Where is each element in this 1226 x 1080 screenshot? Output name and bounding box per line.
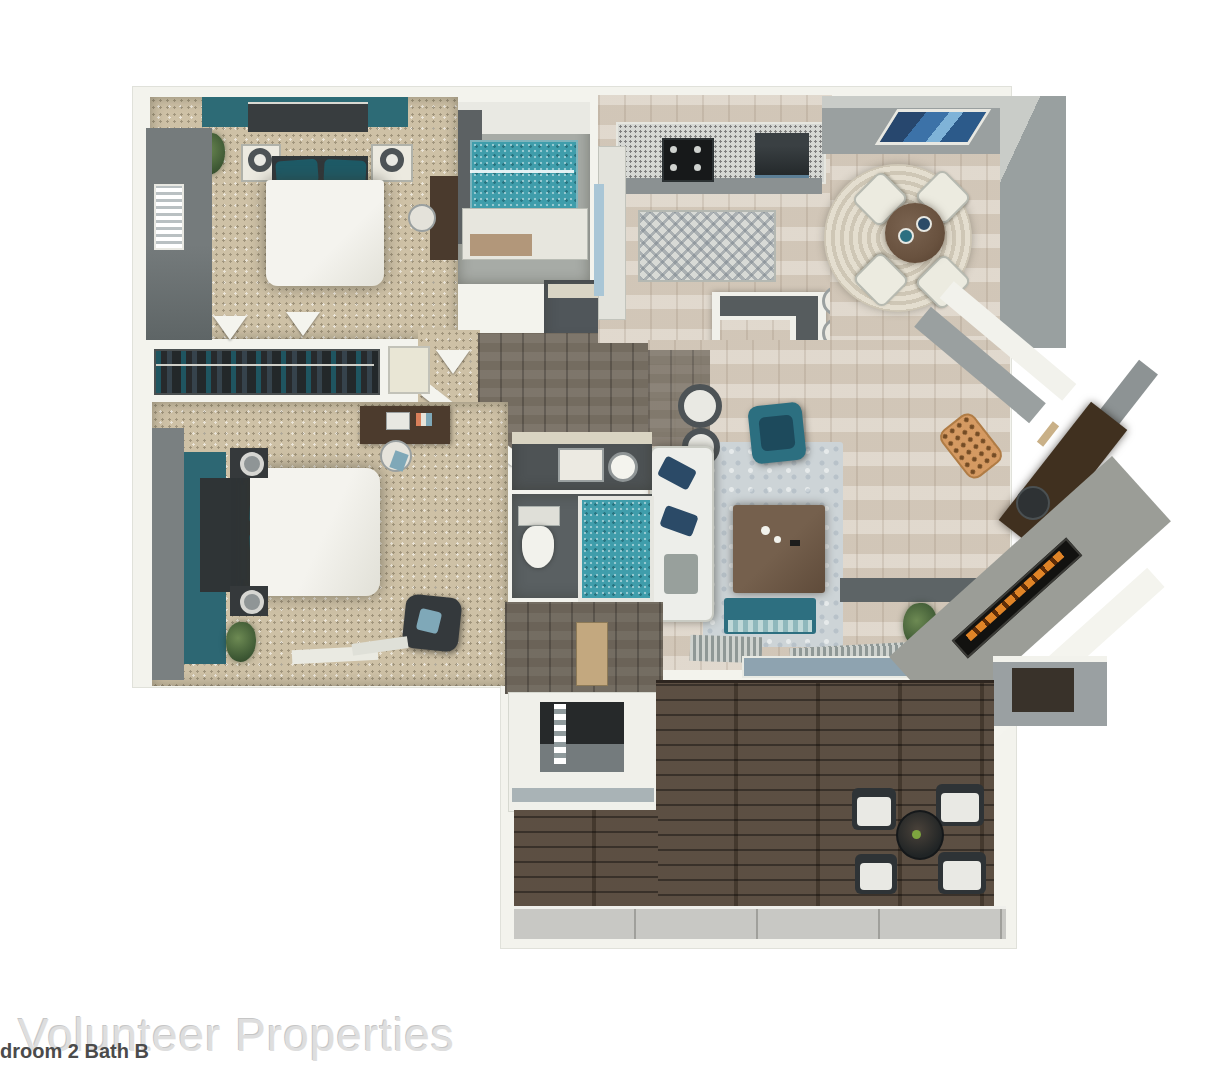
desk-shelf-items bbox=[1037, 421, 1059, 446]
patio-deck-floor-left bbox=[514, 810, 658, 908]
round-side-table bbox=[678, 384, 722, 428]
vanity-wood-base bbox=[470, 234, 532, 256]
patio-concrete-walk bbox=[514, 906, 1006, 939]
patio-chair bbox=[938, 852, 986, 894]
stove-cooktop bbox=[662, 138, 714, 182]
bathroom-2-tub bbox=[578, 496, 654, 602]
remote bbox=[790, 540, 800, 546]
door-swing bbox=[436, 350, 470, 374]
utility-box-interior bbox=[1012, 668, 1074, 712]
floor-plan-page: Volunteer Properties droom 2 Bath B bbox=[0, 0, 1226, 1080]
sliding-glass-door bbox=[742, 656, 911, 678]
bedroom-2-exterior-wall bbox=[152, 428, 184, 680]
lamp-icon bbox=[380, 148, 404, 172]
armchair-cushion bbox=[758, 414, 795, 451]
coffee-mug bbox=[761, 526, 770, 535]
burner-icon bbox=[670, 164, 677, 171]
table-setting bbox=[898, 228, 914, 244]
patio-chair bbox=[855, 854, 897, 894]
desk-chair bbox=[408, 204, 436, 232]
patio-table-plant bbox=[912, 830, 921, 839]
kitchen-window bbox=[594, 184, 604, 296]
closet-rod bbox=[156, 364, 374, 366]
sofa-throw bbox=[664, 554, 698, 594]
walk-in-closet bbox=[154, 349, 380, 395]
open-door-slab bbox=[576, 622, 608, 686]
plan-caption: droom 2 Bath B bbox=[0, 1040, 149, 1063]
burner-icon bbox=[670, 146, 677, 153]
bedroom-1-dresser bbox=[248, 102, 368, 132]
kitchen-rug bbox=[638, 210, 776, 282]
lamp-icon bbox=[248, 148, 272, 172]
refrigerator bbox=[755, 133, 809, 178]
bedroom-1-bed bbox=[266, 180, 384, 286]
storage-step-band bbox=[512, 788, 654, 802]
bathroom-1-shower bbox=[470, 140, 578, 210]
counter-front-edge bbox=[616, 178, 822, 194]
coffee-mug bbox=[774, 536, 781, 543]
bench-cushion bbox=[728, 620, 812, 632]
dining-right-wall bbox=[1000, 96, 1066, 348]
dining-table bbox=[885, 203, 945, 263]
shower-glass bbox=[470, 170, 574, 173]
coffee-table bbox=[733, 505, 825, 593]
vanity-back-wall bbox=[512, 432, 652, 444]
table-setting bbox=[916, 216, 932, 232]
peninsula-countertop bbox=[720, 296, 796, 316]
lamp-icon bbox=[240, 590, 264, 614]
closet-door-swing bbox=[286, 312, 320, 336]
desk-papers bbox=[416, 413, 432, 426]
storage-closet-floor bbox=[540, 744, 624, 772]
patio-chair bbox=[852, 788, 896, 830]
bedroom-2-headboard bbox=[200, 478, 250, 592]
burner-icon bbox=[694, 146, 701, 153]
round-sink bbox=[608, 452, 638, 482]
lamp-icon bbox=[240, 452, 264, 476]
vanity-basin bbox=[558, 448, 604, 482]
closet-door-swing bbox=[213, 316, 247, 340]
storage-blind-strip bbox=[554, 704, 566, 764]
bedroom-2-bed bbox=[250, 468, 380, 596]
laptop bbox=[386, 412, 410, 430]
patio-chair bbox=[936, 784, 984, 826]
burner-icon bbox=[694, 164, 701, 171]
window-icon bbox=[154, 184, 184, 250]
closet-cabinet bbox=[388, 346, 430, 394]
toilet-tank bbox=[518, 506, 560, 526]
toilet-bowl bbox=[522, 526, 554, 568]
